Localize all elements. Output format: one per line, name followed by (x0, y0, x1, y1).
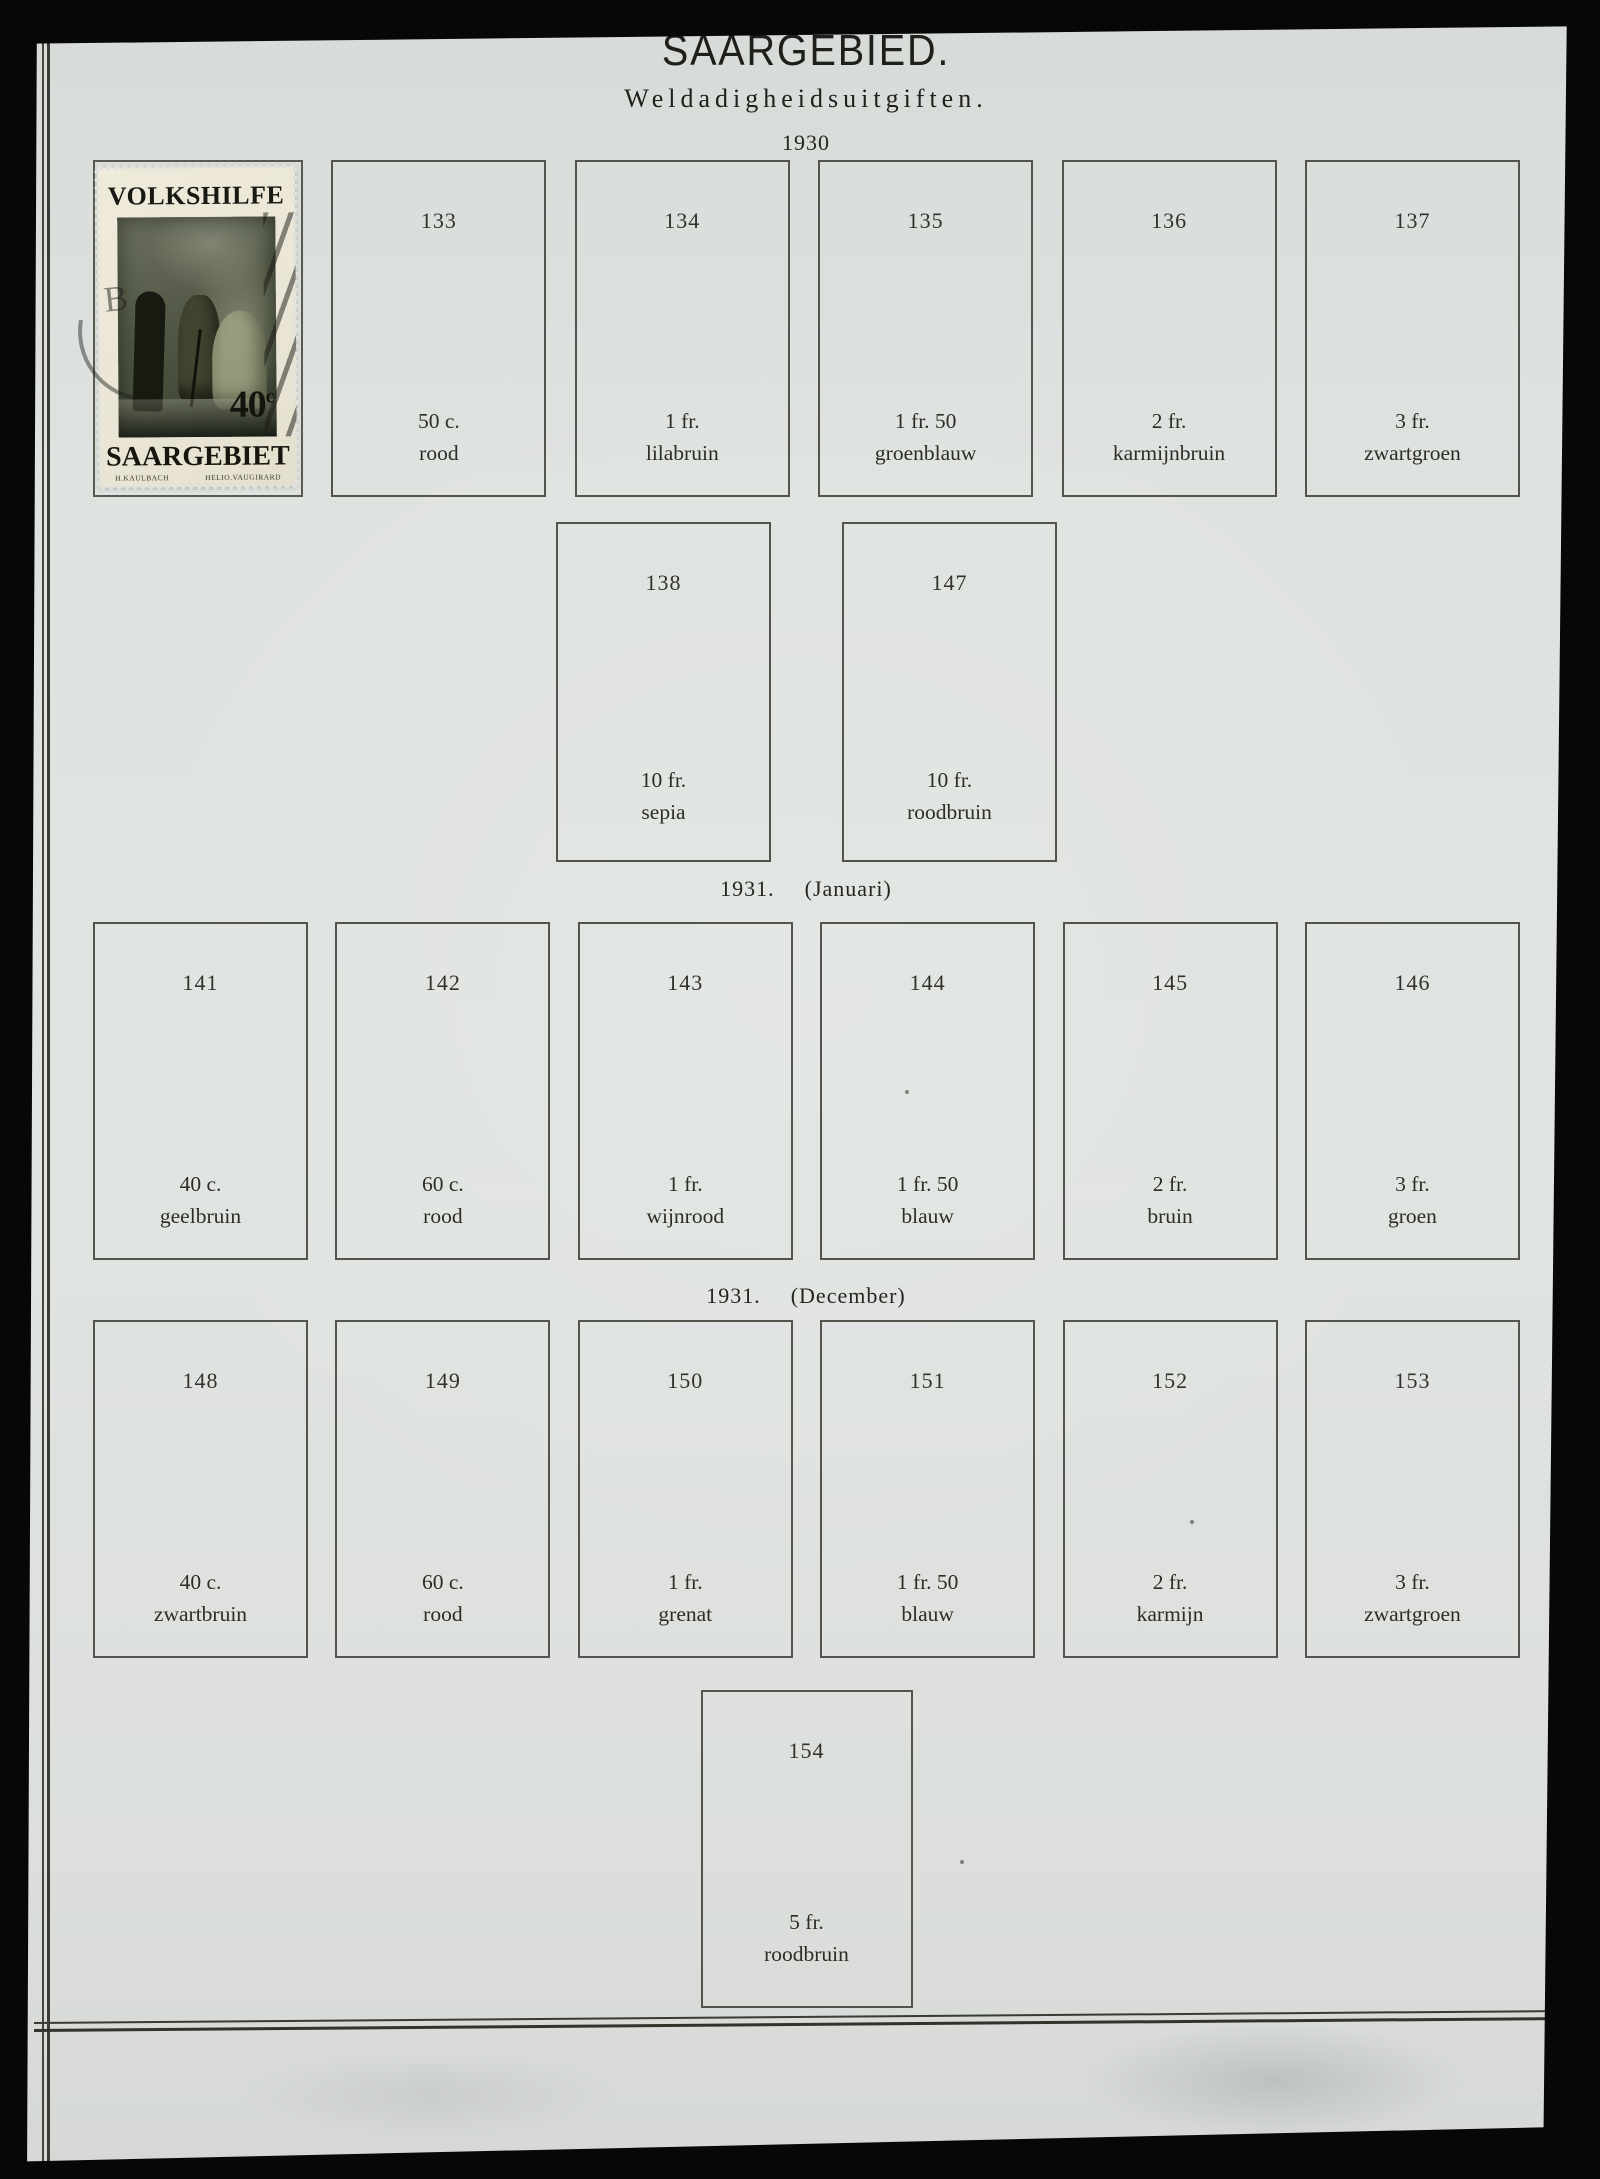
slot-denomination: 50 c. (418, 409, 460, 433)
slot-denomination: 60 c. (422, 1172, 464, 1196)
slot-denomination: 40 c. (180, 1172, 222, 1196)
denomination-value: 40 (230, 384, 266, 426)
slot-denomination: 1 fr. 50 (897, 1172, 959, 1196)
slot-color: blauw (901, 1602, 954, 1626)
stamp-slot-144: 144 1 fr. 50blauw (820, 922, 1035, 1260)
slot-caption: 60 c.rood (337, 1168, 548, 1232)
stamp-slot-145: 145 2 fr.bruin (1063, 922, 1278, 1260)
slot-denomination: 1 fr. 50 (895, 409, 957, 433)
slot-color: bruin (1147, 1204, 1192, 1228)
stamp-slot-137: 137 3 fr.zwartgroen (1305, 160, 1520, 497)
stamp-imprint: H.KAULBACH HELIO.VAUGIRARD (99, 472, 297, 482)
row-1930-main: VOLKSHILFE 40c SAARGEBIET H.KAULBACH HEL… (93, 160, 1520, 497)
slot-denomination: 2 fr. (1153, 1570, 1188, 1594)
slot-number: 142 (337, 970, 548, 996)
stamp-slot-149: 149 60 c.rood (335, 1320, 550, 1658)
slot-number: 152 (1065, 1368, 1276, 1394)
slot-color: zwartgroen (1364, 441, 1461, 465)
slot-color: geelbruin (160, 1204, 241, 1228)
slot-caption: 50 c.rood (333, 405, 544, 469)
slot-caption: 1 fr.lilabruin (577, 405, 788, 469)
slot-denomination: 3 fr. (1395, 1172, 1430, 1196)
slot-caption: 3 fr.zwartgroen (1307, 405, 1518, 469)
stamp-slot-152: 152 2 fr.karmijn (1063, 1320, 1278, 1658)
slot-color: grenat (658, 1602, 712, 1626)
postmark-dashes (263, 212, 297, 436)
row-1930-high-values: 138 10 fr.sepia 147 10 fr.roodbruin (93, 522, 1520, 862)
stamp-slot-133: 133 50 c.rood (331, 160, 546, 497)
slot-number: 138 (558, 570, 769, 596)
slot-number: 134 (577, 208, 788, 234)
slot-caption: 1 fr.grenat (580, 1566, 791, 1630)
stamp-slot-148: 148 40 c.zwartbruin (93, 1320, 308, 1658)
slot-denomination: 5 fr. (789, 1910, 824, 1934)
stamp-slot-134: 134 1 fr.lilabruin (575, 160, 790, 497)
volkshilfe-40c-stamp: VOLKSHILFE 40c SAARGEBIET H.KAULBACH HEL… (97, 166, 297, 487)
slot-color: sepia (641, 800, 685, 824)
stamp-slot-141: 141 40 c.geelbruin (93, 922, 308, 1260)
slot-denomination: 40 c. (180, 1570, 222, 1594)
slot-number: 149 (337, 1368, 548, 1394)
slot-number: 145 (1065, 970, 1276, 996)
slot-caption: 40 c.zwartbruin (95, 1566, 306, 1630)
slot-color: groenblauw (875, 441, 977, 465)
slot-caption: 2 fr.bruin (1065, 1168, 1276, 1232)
slot-denomination: 1 fr. (668, 1570, 703, 1594)
slot-color: zwartgroen (1364, 1602, 1461, 1626)
slot-color: zwartbruin (154, 1602, 247, 1626)
album-grid: VOLKSHILFE 40c SAARGEBIET H.KAULBACH HEL… (93, 0, 1520, 2179)
slot-caption: 2 fr.karmijn (1065, 1566, 1276, 1630)
slot-number: 150 (580, 1368, 791, 1394)
postmark-letter: B (102, 276, 131, 320)
slot-denomination: 2 fr. (1153, 1172, 1188, 1196)
stamp-slot-150: 150 1 fr.grenat (578, 1320, 793, 1658)
slot-caption: 1 fr. 50blauw (822, 1566, 1033, 1630)
perforation-edge (99, 482, 297, 491)
slot-caption: 10 fr.sepia (558, 764, 769, 828)
slot-color: wijnrood (646, 1204, 724, 1228)
slot-denomination: 60 c. (422, 1570, 464, 1594)
stamp-slot-135: 135 1 fr. 50groenblauw (818, 160, 1033, 497)
stamp-slot-151: 151 1 fr. 50blauw (820, 1320, 1035, 1658)
slot-denomination: 1 fr. 50 (897, 1570, 959, 1594)
slot-number: 143 (580, 970, 791, 996)
imprint-printer: HELIO.VAUGIRARD (205, 472, 281, 482)
stamp-slot-mounted: VOLKSHILFE 40c SAARGEBIET H.KAULBACH HEL… (93, 160, 303, 497)
slot-color: blauw (901, 1204, 954, 1228)
stamp-top-text: VOLKSHILFE (97, 180, 295, 211)
stamp-slot-153: 153 3 fr.zwartgroen (1305, 1320, 1520, 1658)
slot-denomination: 2 fr. (1152, 409, 1187, 433)
stamp-slot-143: 143 1 fr.wijnrood (578, 922, 793, 1260)
stamp-slot-146: 146 3 fr.groen (1305, 922, 1520, 1260)
row-1931-januari: 141 40 c.geelbruin 142 60 c.rood 143 1 f… (93, 922, 1520, 1260)
slot-number: 136 (1064, 208, 1275, 234)
slot-number: 133 (333, 208, 544, 234)
slot-caption: 5 fr.roodbruin (703, 1906, 911, 1970)
slot-color: roodbruin (764, 1942, 849, 1966)
row-1931-december-high-value: 154 5 fr.roodbruin (93, 1690, 1520, 2008)
slot-number: 154 (703, 1738, 911, 1764)
stamp-slot-136: 136 2 fr.karmijnbruin (1062, 160, 1277, 497)
slot-denomination: 10 fr. (927, 768, 972, 792)
page-frame-left-line (42, 40, 50, 2162)
slot-number: 146 (1307, 970, 1518, 996)
imprint-designer: H.KAULBACH (115, 473, 169, 482)
slot-color: rood (423, 1602, 462, 1626)
slot-number: 144 (822, 970, 1033, 996)
slot-caption: 1 fr. 50groenblauw (820, 405, 1031, 469)
slot-color: rood (423, 1204, 462, 1228)
slot-denomination: 3 fr. (1395, 409, 1430, 433)
slot-caption: 10 fr.roodbruin (844, 764, 1055, 828)
slot-caption: 1 fr.wijnrood (580, 1168, 791, 1232)
slot-denomination: 1 fr. (665, 409, 700, 433)
stamp-slot-147: 147 10 fr.roodbruin (842, 522, 1057, 862)
slot-denomination: 3 fr. (1395, 1570, 1430, 1594)
row-1931-december: 148 40 c.zwartbruin 149 60 c.rood 150 1 … (93, 1320, 1520, 1658)
slot-caption: 60 c.rood (337, 1566, 548, 1630)
slot-color: karmijn (1137, 1602, 1204, 1626)
slot-number: 148 (95, 1368, 306, 1394)
slot-color: roodbruin (907, 800, 992, 824)
slot-number: 147 (844, 570, 1055, 596)
album-page-paper: SAARGEBIED. Weldadigheidsuitgiften. 1930… (0, 0, 1600, 2179)
slot-caption: 40 c.geelbruin (95, 1168, 306, 1232)
slot-caption: 1 fr. 50blauw (822, 1168, 1033, 1232)
slot-caption: 3 fr.groen (1307, 1168, 1518, 1232)
slot-number: 137 (1307, 208, 1518, 234)
slot-denomination: 10 fr. (641, 768, 686, 792)
slot-denomination: 1 fr. (668, 1172, 703, 1196)
stamp-bottom-text: SAARGEBIET (99, 440, 297, 473)
slot-number: 141 (95, 970, 306, 996)
slot-color: groen (1388, 1204, 1437, 1228)
stamp-slot-138: 138 10 fr.sepia (556, 522, 771, 862)
slot-color: lilabruin (646, 441, 719, 465)
perforation-edge (97, 162, 295, 171)
stamp-slot-142: 142 60 c.rood (335, 922, 550, 1260)
slot-caption: 3 fr.zwartgroen (1307, 1566, 1518, 1630)
slot-color: rood (419, 441, 458, 465)
stamp-slot-154: 154 5 fr.roodbruin (701, 1690, 913, 2008)
slot-number: 151 (822, 1368, 1033, 1394)
slot-number: 135 (820, 208, 1031, 234)
slot-caption: 2 fr.karmijnbruin (1064, 405, 1275, 469)
slot-color: karmijnbruin (1113, 441, 1225, 465)
slot-number: 153 (1307, 1368, 1518, 1394)
